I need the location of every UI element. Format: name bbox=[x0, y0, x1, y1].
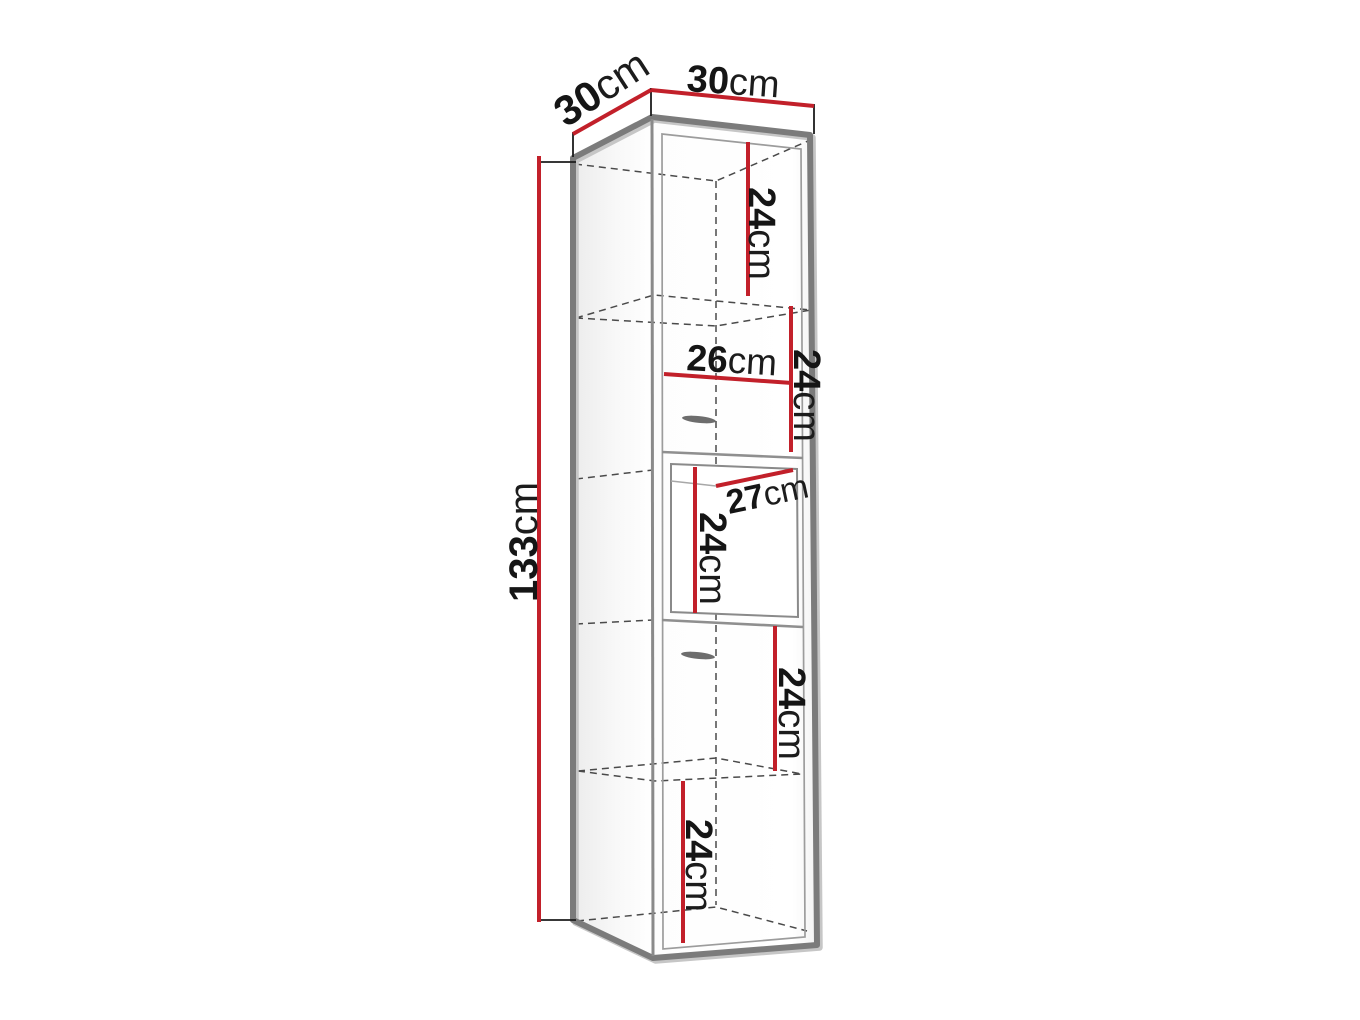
label-total-height: 133cm bbox=[502, 482, 546, 602]
label-top-width: 30cm bbox=[685, 58, 781, 106]
diagram-canvas: 30cm 30cm 133cm 24cm 26cm 24cm 27cm 24cm… bbox=[0, 0, 1360, 1020]
label-niche-height: 24cm bbox=[691, 512, 733, 605]
label-section-4-height: 24cm bbox=[770, 667, 812, 760]
label-section-2-height: 24cm bbox=[785, 349, 827, 442]
front-corner-edge bbox=[652, 119, 653, 956]
label-section-1-height: 24cm bbox=[740, 187, 782, 280]
furniture-dimension-diagram: 30cm 30cm 133cm 24cm 26cm 24cm 27cm 24cm… bbox=[0, 0, 1360, 1020]
cabinet-side-panel bbox=[573, 117, 653, 958]
label-section-5-height: 24cm bbox=[677, 819, 719, 912]
label-drawer-width: 26cm bbox=[686, 337, 779, 383]
